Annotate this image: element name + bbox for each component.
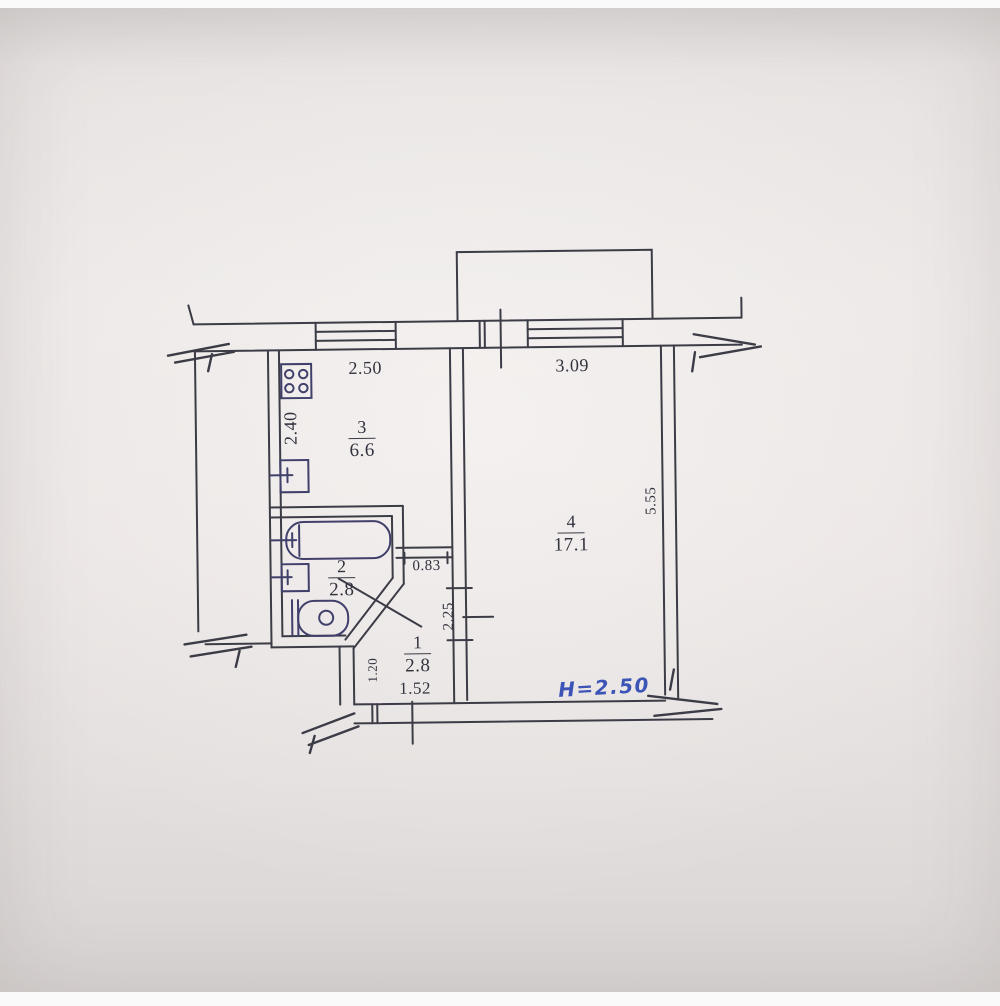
room-area: 6.6 (349, 439, 375, 463)
right-wall (661, 345, 678, 698)
dim-living-depth: 5.55 (643, 487, 660, 515)
room-number: 3 (348, 418, 375, 439)
room-area: 17.1 (554, 533, 590, 557)
toilet-icon (292, 599, 348, 636)
kitchen-sink-icon (270, 460, 308, 492)
room-number: 1 (404, 633, 431, 654)
floor-plan: 2.50 3.09 2.40 5.55 0.83 2.25 1.20 1.52 … (0, 0, 1000, 1006)
room-label-living-room: 4 17.1 (553, 512, 589, 557)
ceiling-height-note: H=2.50 (558, 673, 651, 702)
top-wall (188, 298, 742, 352)
dim-kitchen-doorway: 0.83 (412, 558, 440, 575)
dim-hall-width: 1.52 (399, 678, 431, 698)
stove-icon (281, 364, 311, 398)
left-wall (195, 350, 272, 644)
room-label-kitchen: 3 6.6 (348, 418, 376, 463)
dim-kitchen-depth: 2.40 (280, 411, 301, 445)
floor-plan-drawing (0, 0, 1000, 1006)
room-number: 2 (328, 557, 355, 578)
kitchen-left-wall (268, 350, 283, 647)
hall-livingroom-wall (444, 348, 494, 704)
living-room-window-icon (528, 319, 623, 347)
dim-kitchen-width: 2.50 (348, 358, 382, 379)
bathroom-sink-icon (272, 564, 309, 591)
bathtub-icon (271, 521, 390, 559)
balcony-door-icon (479, 310, 501, 368)
balcony-outline (457, 250, 653, 320)
dim-hall-depth: 2.25 (441, 602, 458, 630)
room-area: 2.8 (405, 654, 431, 678)
dim-hall-nook-depth: 1.20 (365, 658, 381, 683)
room-label-bathroom: 2 2.8 (328, 557, 356, 602)
room-label-hall: 1 2.8 (404, 633, 432, 678)
room-number: 4 (557, 512, 584, 533)
dim-living-width: 3.09 (555, 355, 589, 376)
room-area: 2.8 (329, 578, 355, 602)
bottom-wall (354, 698, 712, 744)
kitchen-window-icon (316, 322, 396, 350)
